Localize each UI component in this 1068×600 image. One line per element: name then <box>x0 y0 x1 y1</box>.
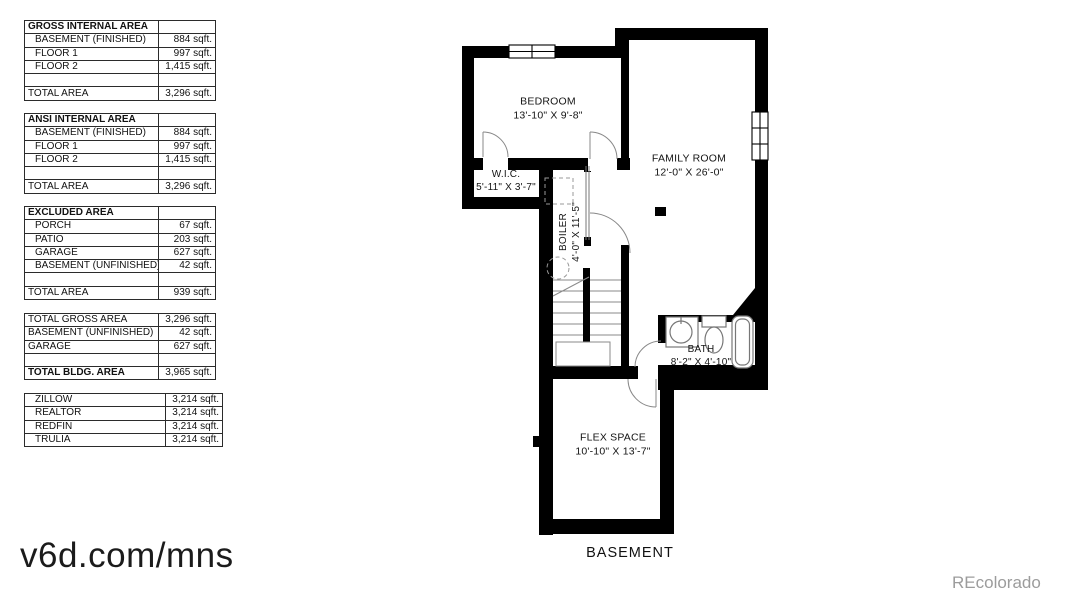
family-room-label: FAMILY ROOM 12'-0" X 26'-0" <box>652 152 726 179</box>
bedroom-label: BEDROOM 13'-10" X 9'-8" <box>513 95 582 122</box>
room-dims: 13'-10" X 9'-8" <box>513 109 582 123</box>
room-name: BEDROOM <box>513 95 582 109</box>
room-dims: 8'-2" X 4'-10" <box>671 356 731 369</box>
watermark-url: v6d.com/mns <box>20 536 234 576</box>
floor-plan-drawing <box>0 0 1068 600</box>
floor-title: BASEMENT <box>586 545 674 561</box>
stair-landing <box>556 342 610 366</box>
room-name: FLEX SPACE <box>575 431 650 445</box>
support-column <box>655 207 666 216</box>
sink-icon <box>670 321 692 343</box>
flex-space-label: FLEX SPACE 10'-10" X 13'-7" <box>575 431 650 458</box>
toilet-tank <box>702 316 726 327</box>
room-name: BOILER <box>557 202 570 262</box>
room-name: W.I.C. <box>476 168 536 181</box>
room-name: FAMILY ROOM <box>652 152 726 166</box>
room-dims: 4'-0" X 11'-5" <box>570 202 583 262</box>
room-dims: 10'-10" X 13'-7" <box>575 445 650 459</box>
boiler-closet <box>586 166 589 240</box>
bath-label: BATH 8'-2" X 4'-10" <box>671 343 731 369</box>
wic-label: W.I.C. 5'-11" X 3'-7" <box>476 168 536 194</box>
boiler-label: BOILER 4'-0" X 11'-5" <box>557 202 583 262</box>
floorplan-page: GROSS INTERNAL AREA BASEMENT (FINISHED)8… <box>0 0 1068 600</box>
room-name: BATH <box>671 343 731 356</box>
listing-source-credit: REcolorado <box>952 573 1041 593</box>
room-dims: 5'-11" X 3'-7" <box>476 181 536 194</box>
room-dims: 12'-0" X 26'-0" <box>652 166 726 180</box>
walls <box>462 28 768 535</box>
